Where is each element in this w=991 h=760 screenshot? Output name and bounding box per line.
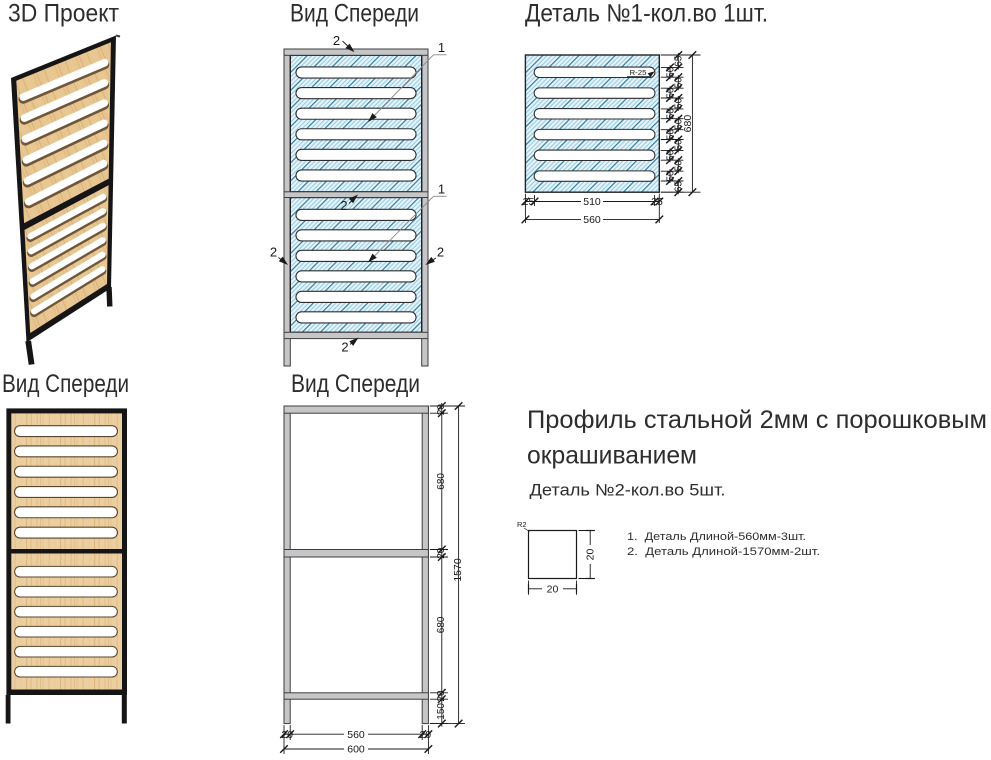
svg-text:50: 50 (665, 108, 676, 120)
svg-text:2: 2 (437, 245, 444, 260)
svg-text:2: 2 (270, 245, 277, 260)
svg-text:Вид Спереди: Вид Спереди (2, 370, 129, 398)
svg-text:25: 25 (651, 196, 663, 208)
svg-text:2: 2 (340, 198, 347, 213)
svg-text:50: 50 (665, 66, 676, 78)
svg-text:2. Деталь Длиной-1570мм-2шт.: 2. Деталь Длиной-1570мм-2шт. (627, 546, 820, 558)
svg-text:Деталь №1-кол.во 1шт.: Деталь №1-кол.во 1шт. (525, 0, 768, 28)
svg-text:2: 2 (333, 33, 340, 48)
svg-text:1. Деталь Длиной-560мм-3шт.: 1. Деталь Длиной-560мм-3шт. (627, 531, 806, 543)
svg-text:20: 20 (436, 690, 447, 702)
svg-text:560: 560 (583, 214, 601, 226)
svg-text:50: 50 (665, 87, 676, 99)
svg-text:R2: R2 (517, 520, 527, 529)
svg-text:65: 65 (674, 181, 685, 193)
svg-text:50: 50 (665, 129, 676, 141)
svg-text:1: 1 (438, 182, 445, 197)
svg-text:150: 150 (436, 703, 447, 720)
svg-text:3D Проект: 3D Проект (8, 0, 119, 28)
svg-text:Вид Спереди: Вид Спереди (291, 370, 420, 398)
svg-text:окрашиванием: окрашиванием (527, 442, 697, 470)
svg-text:50: 50 (674, 77, 685, 89)
svg-text:20: 20 (281, 729, 293, 741)
svg-text:50: 50 (665, 149, 676, 161)
svg-text:50: 50 (674, 160, 685, 172)
svg-text:20: 20 (436, 547, 447, 559)
svg-text:20: 20 (436, 404, 447, 416)
svg-text:20: 20 (419, 729, 431, 741)
svg-text:2: 2 (341, 340, 348, 355)
svg-text:680: 680 (682, 115, 694, 133)
svg-text:20: 20 (585, 549, 597, 561)
svg-text:Профиль стальной 2мм с порошко: Профиль стальной 2мм с порошковым (527, 406, 987, 434)
svg-text:50: 50 (674, 139, 685, 151)
svg-text:560: 560 (347, 729, 365, 741)
svg-text:1570: 1570 (452, 558, 464, 582)
svg-text:510: 510 (583, 196, 601, 208)
svg-text:680: 680 (436, 616, 447, 633)
svg-text:680: 680 (436, 473, 447, 490)
svg-text:65: 65 (674, 55, 685, 67)
svg-text:25: 25 (523, 196, 535, 208)
svg-text:20: 20 (547, 583, 559, 595)
svg-text:1: 1 (438, 40, 445, 55)
svg-text:R-25: R-25 (630, 70, 647, 77)
svg-text:50: 50 (665, 170, 676, 182)
svg-text:600: 600 (347, 744, 365, 756)
svg-text:50: 50 (674, 97, 685, 109)
svg-text:Вид Спереди: Вид Спереди (290, 0, 419, 28)
svg-text:Деталь №2-кол.во 5шт.: Деталь №2-кол.во 5шт. (530, 482, 726, 500)
